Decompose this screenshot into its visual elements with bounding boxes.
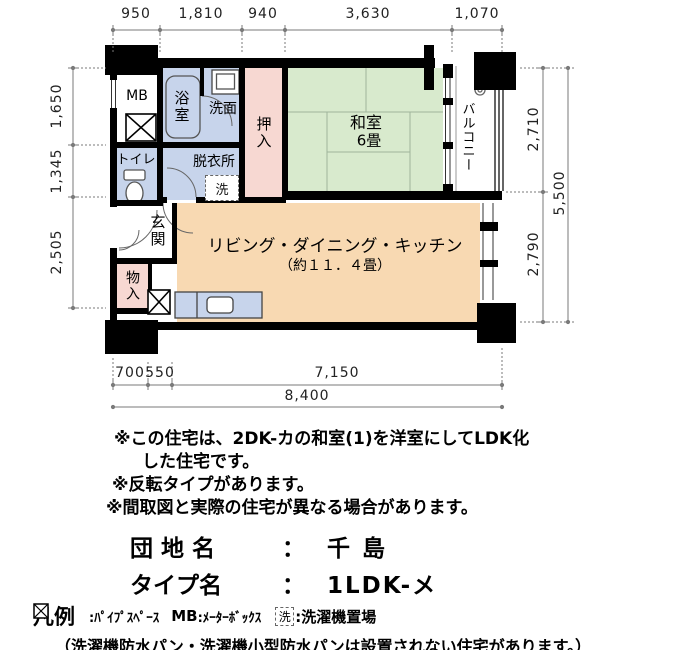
wall-toilet-bottom [117,200,163,206]
note-line-2: した住宅です。 [106,451,529,474]
pipe-space-icon [148,290,170,314]
wall-dressing-bottom-a [157,197,167,203]
dim-bottom-700: 700 [115,366,145,380]
dim-bottom-550: 550 [145,366,175,380]
column-bottom-right [477,303,516,343]
wall-entrance-bottom [117,258,177,264]
dim-bottom-8400: 8,400 [284,389,329,403]
note-line-3: ※反転タイプがあります。 [106,474,529,497]
dim-right-2710: 2,710 [527,106,541,151]
dim-top-witness [113,34,502,54]
wall-washitsu-bottom [282,191,502,200]
window-stub-top [443,64,453,78]
entrance-door-opening [110,206,117,248]
notes-block: ※この住宅は、2DK-カの和室(1)を洋室にしてLDK化 した住宅です。 ※反転… [106,428,529,520]
ldk-window-mullion-b [480,260,498,267]
label-washitsu: 和室 [350,115,382,131]
estate-type-separator: ： [282,566,305,600]
wall-oshiire-washitsu [282,66,288,194]
floor-plan-sheet: 950 1,810 940 3,630 1,070 1,650 1,345 2,… [0,0,700,650]
wall-toilet-dressing [157,145,163,203]
label-washstand: 洗面 [209,102,237,116]
legend-row: 凡例 :ﾊﾟｲﾌﾟｽﾍﾟｰｽ MB :ﾒｰﾀｰﾎﾞｯｸｽ 洗 :洗濯機置場 [33,603,591,629]
dim-bottom-7150: 7,150 [314,366,359,380]
toilet-tank-icon [124,170,145,180]
legend-laundry-key: 洗 [279,608,291,625]
wall-storage-bottom [117,308,152,314]
estate-type-row: タイプ名 ： 1LDK-メ [130,564,437,601]
laundry-spot-box: 洗 [205,175,239,201]
kitchen-sink-icon [207,297,233,313]
estate-name-label: 団 地 名 [130,529,282,563]
legend-mb-key: MB [171,607,197,625]
label-laundry: 洗 [215,179,228,198]
label-entrance: 玄関 [150,214,165,248]
window-mullion-a [443,98,453,105]
window-mullion-b [443,142,453,149]
estate-type-label: タイプ名 [130,566,282,600]
dim-right-2790: 2,790 [527,231,541,276]
estate-name-separator: ： [282,529,305,563]
wall-entrance-right [172,203,177,260]
dim-left-1650: 1,650 [50,83,64,128]
dim-left-1345: 1,345 [50,148,64,193]
label-balcony: バルコニー [461,102,474,172]
washitsu-balcony-window [443,78,453,184]
estate-name-row: 団 地 名 ： 千 島 [130,527,437,564]
dim-right-5500: 5,500 [553,170,567,215]
pipe-space-icon [126,114,156,141]
label-ldk: リビング・ダイニング・キッチン [208,239,463,256]
label-bath: 浴室 [174,90,189,124]
label-ldk-size: （約１１．４畳） [279,259,391,273]
note-line-1: ※この住宅は、2DK-カの和室(1)を洋室にしてLDK化 [106,428,529,451]
label-toilet: トイレ [116,154,155,167]
legend-laundry-text: :洗濯機置場 [295,606,376,627]
legend-note: （洗濯機防水パン・洗濯機小型防水パンは設置されない住宅があります。） [55,633,591,650]
window-stub-bottom [443,184,453,193]
dim-top-1810: 1,810 [178,7,223,21]
laundry-symbol-box: 洗 [275,607,294,626]
label-mb: MB [126,89,148,103]
label-storage: 物入 [125,270,139,302]
estate-type-value: 1LDK-メ [327,566,437,600]
entrance-inner-arc-icon [119,230,139,250]
ldk-window-mullion-a [480,222,498,231]
dim-top-3630: 3,630 [345,7,390,21]
column-bottom-left [105,320,158,354]
label-dressing: 脱衣所 [193,155,235,169]
label-oshiire: 押入 [256,116,271,150]
dim-left-2505: 2,505 [50,229,64,274]
label-washitsu-size: 6畳 [357,134,382,149]
wall-washstand-oshiire [239,66,245,200]
pipe-space-icon [33,603,49,619]
dim-top-1070: 1,070 [454,7,499,21]
wall-bottom [148,322,480,330]
dim-top-950: 950 [121,7,151,21]
wall-bathrow-bottom [117,142,239,148]
wall-top-stub [424,45,434,90]
legend-block: 凡例 :ﾊﾟｲﾌﾟｽﾍﾟｰｽ MB :ﾒｰﾀｰﾎﾞｯｸｽ 洗 :洗濯機置場 （洗… [33,603,591,650]
legend-mb-text: :ﾒｰﾀｰﾎﾞｯｸｽ [198,607,262,626]
wall-mb-bath [157,66,163,145]
note-line-4: ※間取図と実際の住宅が異なる場合があります。 [106,497,529,520]
estate-name-value: 千 島 [327,529,387,563]
dim-top-940: 940 [248,7,278,21]
column-top-right [474,52,516,90]
wall-bath-partition [200,66,204,96]
legend-pipe-text: :ﾊﾟｲﾌﾟｽﾍﾟｰｽ [89,607,159,626]
dim-left-witness [77,68,106,308]
estate-block: 団 地 名 ： 千 島 タイプ名 ： 1LDK-メ [130,527,437,601]
